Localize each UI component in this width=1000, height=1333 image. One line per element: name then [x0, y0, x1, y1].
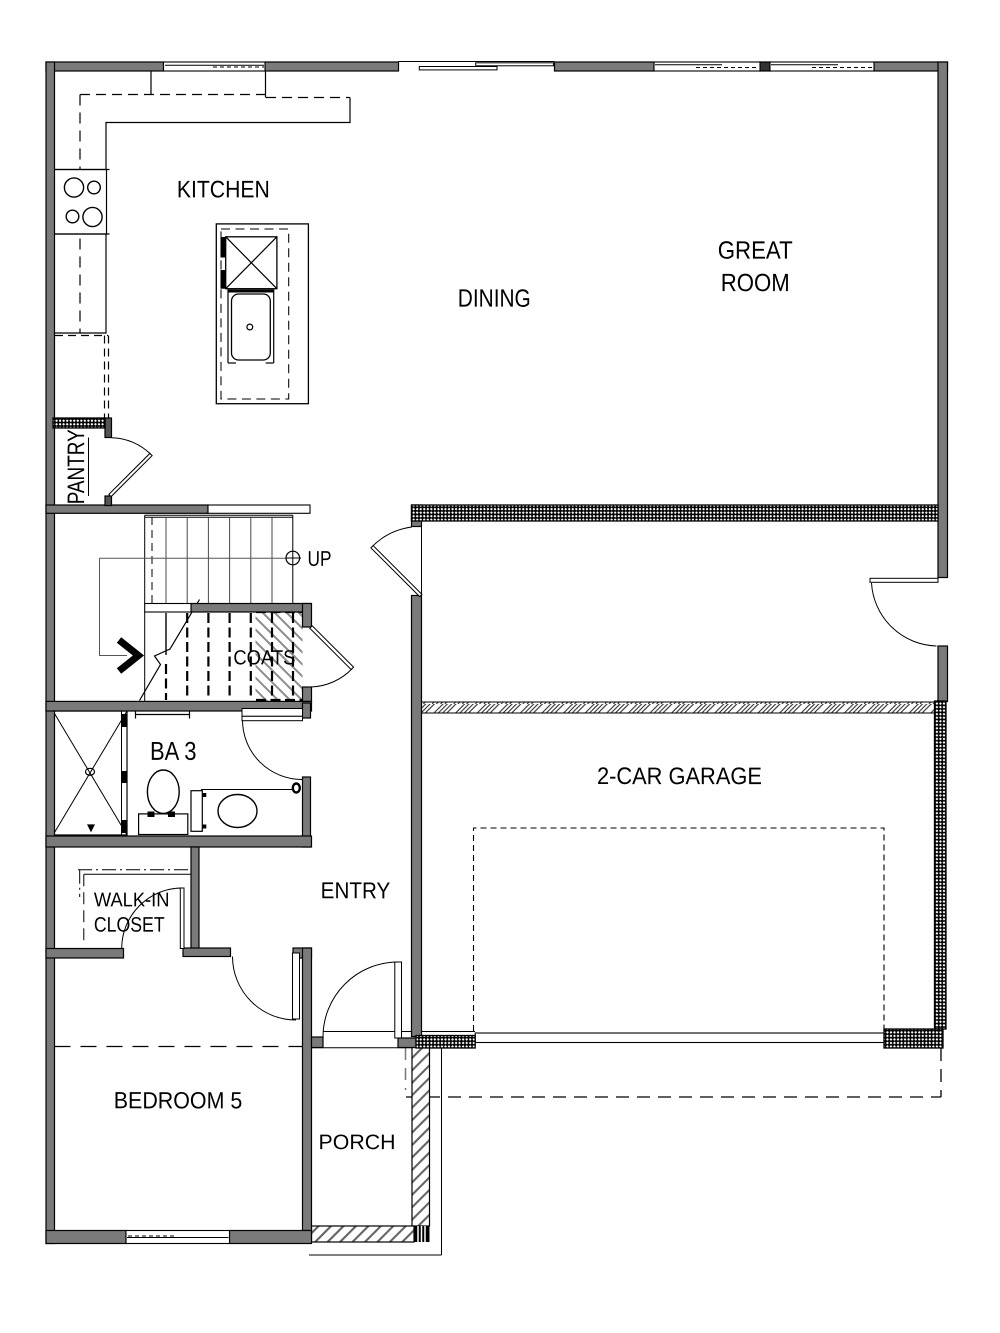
svg-text:ROOM: ROOM	[721, 269, 790, 297]
svg-text:GREAT: GREAT	[718, 237, 793, 265]
svg-text:CLOSET: CLOSET	[94, 914, 165, 937]
svg-text:WALK-IN: WALK-IN	[94, 889, 170, 911]
svg-text:UP: UP	[308, 547, 332, 571]
svg-text:ENTRY: ENTRY	[321, 877, 391, 903]
svg-text:BA 3: BA 3	[150, 736, 197, 766]
svg-text:DINING: DINING	[458, 285, 531, 313]
svg-text:PANTRY: PANTRY	[63, 429, 90, 504]
svg-text:COATS: COATS	[233, 646, 295, 669]
svg-text:BEDROOM 5: BEDROOM 5	[114, 1087, 243, 1113]
svg-text:KITCHEN: KITCHEN	[177, 176, 270, 203]
svg-text:2-CAR GARAGE: 2-CAR GARAGE	[597, 763, 762, 790]
svg-text:PORCH: PORCH	[319, 1131, 396, 1154]
